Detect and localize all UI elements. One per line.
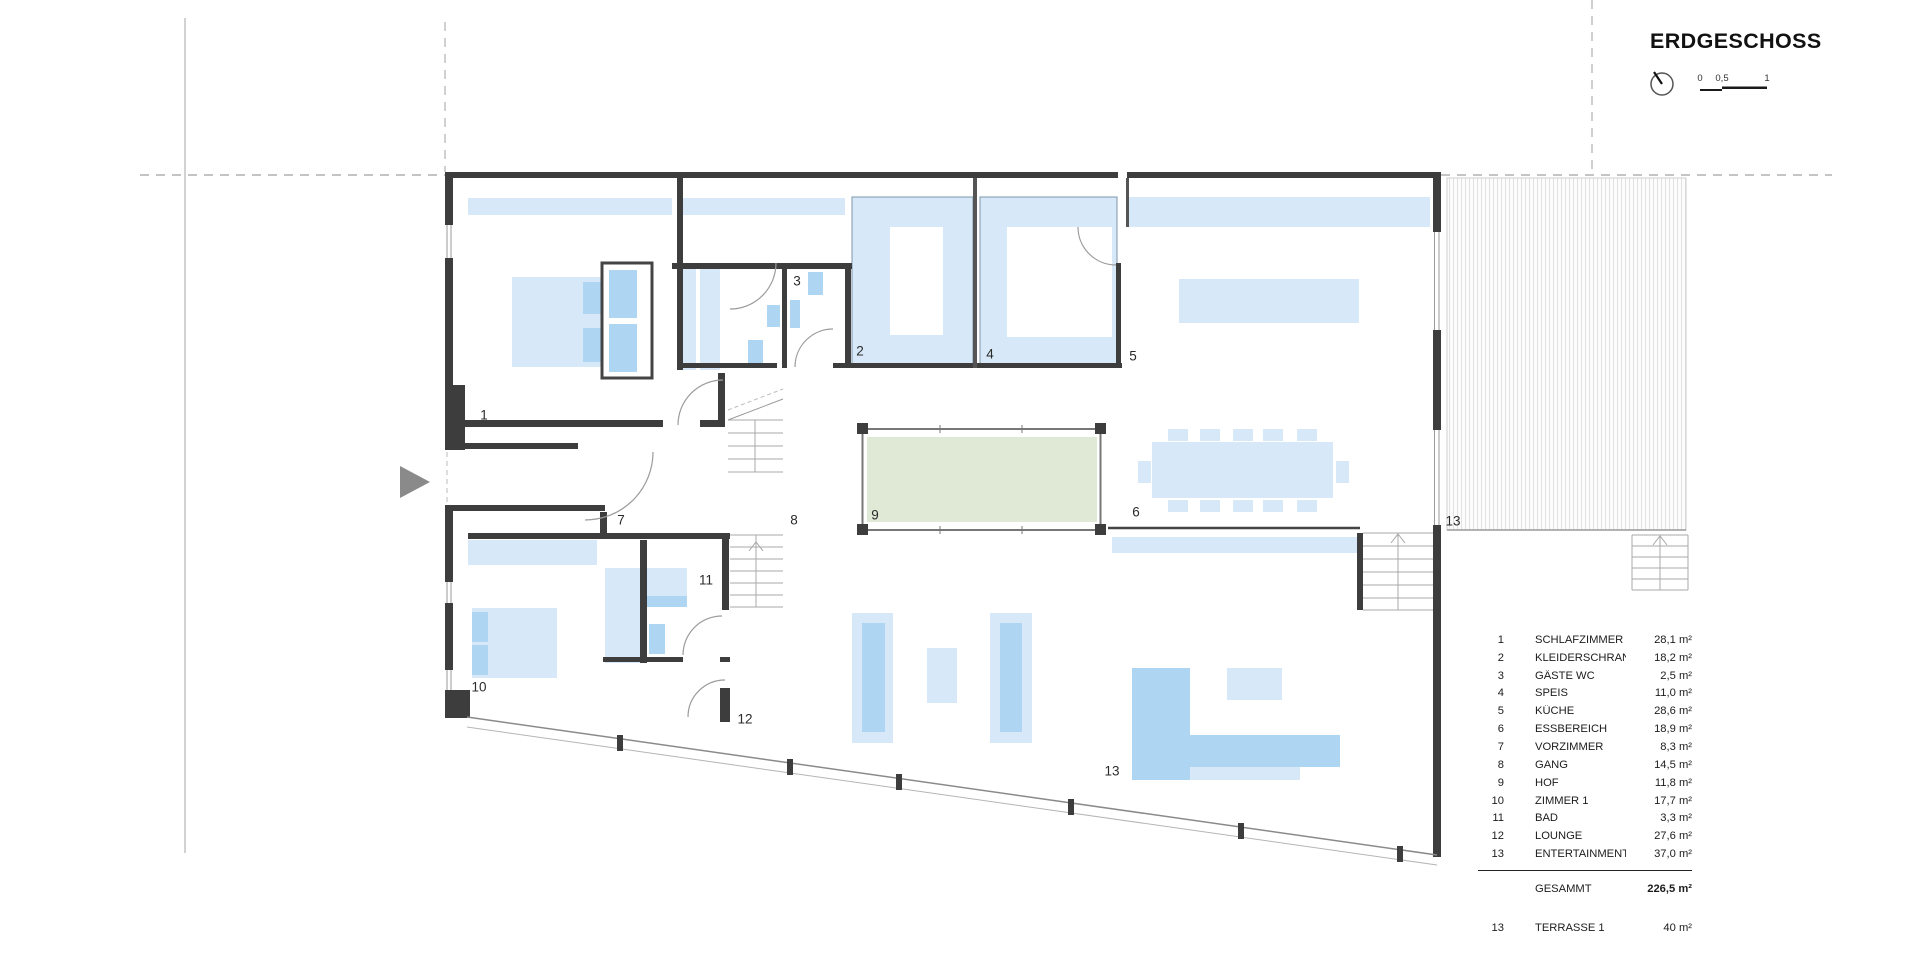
legend-row: 5KÜCHE28,6 m² (1478, 702, 1692, 720)
room-number-label: 6 (1132, 505, 1140, 520)
legend-row-name: SPEIS (1504, 687, 1626, 699)
room-number-label: 2 (856, 344, 864, 359)
legend-row-name: ZIMMER 1 (1504, 795, 1626, 807)
legend-row: 6ESSBEREICH18,9 m² (1478, 720, 1692, 738)
room-legend: 1SCHLAFZIMMER28,1 m²2KLEIDERSCHRANK18,2 … (1478, 631, 1692, 937)
legend-row-name: VORZIMMER (1504, 741, 1626, 753)
legend-row: 12LOUNGE27,6 m² (1478, 827, 1692, 845)
room-number-label: 4 (986, 347, 994, 362)
legend-row-area: 28,6 m² (1626, 705, 1692, 717)
room-number-label: 13 (1445, 514, 1460, 529)
legend-row-name: LOUNGE (1504, 830, 1626, 842)
legend-row: 10ZIMMER 117,7 m² (1478, 792, 1692, 810)
legend-row-number: 6 (1478, 723, 1504, 735)
legend-row: 13ENTERTAINMENT37,0 m² (1478, 845, 1692, 863)
room-number-label: 12 (737, 712, 752, 727)
legend-row: 11BAD3,3 m² (1478, 809, 1692, 827)
legend-row-name: ENTERTAINMENT (1504, 848, 1626, 860)
legend-row-area: 37,0 m² (1626, 848, 1692, 860)
legend-row-number: 4 (1478, 687, 1504, 699)
legend-row-number: 12 (1478, 830, 1504, 842)
legend-terrace-area: 40 m² (1626, 922, 1692, 934)
legend-row-name: KÜCHE (1504, 705, 1626, 717)
legend-row-area: 18,2 m² (1626, 652, 1692, 664)
room-number-label: 10 (471, 680, 486, 695)
legend-row: 7VORZIMMER8,3 m² (1478, 738, 1692, 756)
legend-terrace-num: 13 (1478, 922, 1504, 934)
room-number-label: 9 (871, 508, 879, 523)
legend-row: 4SPEIS11,0 m² (1478, 685, 1692, 703)
legend-rows: 1SCHLAFZIMMER28,1 m²2KLEIDERSCHRANK18,2 … (1478, 631, 1692, 863)
legend-row-name: HOF (1504, 777, 1626, 789)
room-number-label: 5 (1129, 349, 1137, 364)
room-number-label: 7 (617, 513, 625, 528)
legend-row-number: 3 (1478, 670, 1504, 682)
legend-row-area: 11,0 m² (1626, 687, 1692, 699)
legend-row-area: 2,5 m² (1626, 670, 1692, 682)
legend-row-area: 27,6 m² (1626, 830, 1692, 842)
legend-row: 3GÄSTE WC2,5 m² (1478, 667, 1692, 685)
legend-row-name: GÄSTE WC (1504, 670, 1626, 682)
legend-row-area: 8,3 m² (1626, 741, 1692, 753)
legend-row-area: 17,7 m² (1626, 795, 1692, 807)
room-number-label: 1 (480, 408, 488, 423)
legend-row-name: SCHLAFZIMMER (1504, 634, 1626, 646)
legend-row-number: 9 (1478, 777, 1504, 789)
legend-row-number: 7 (1478, 741, 1504, 753)
legend-total-area: 226,5 m² (1626, 883, 1692, 895)
legend-total-label: GESAMMT (1504, 883, 1626, 895)
legend-row-name: KLEIDERSCHRANK (1504, 652, 1626, 664)
legend-row-name: ESSBEREICH (1504, 723, 1626, 735)
legend-row-area: 14,5 m² (1626, 759, 1692, 771)
room-number-label: 8 (790, 513, 798, 528)
legend-row-number: 8 (1478, 759, 1504, 771)
legend-row-name: BAD (1504, 812, 1626, 824)
legend-row: 9HOF11,8 m² (1478, 774, 1692, 792)
legend-row-number: 1 (1478, 634, 1504, 646)
legend-row-number: 2 (1478, 652, 1504, 664)
legend-row: 8GANG14,5 m² (1478, 756, 1692, 774)
legend-terrace-row: 13 TERRASSE 1 40 m² (1478, 919, 1692, 937)
legend-row: 2KLEIDERSCHRANK18,2 m² (1478, 649, 1692, 667)
room-number-label: 13 (1104, 764, 1119, 779)
legend-row-area: 11,8 m² (1626, 777, 1692, 789)
room-number-label: 3 (793, 274, 801, 289)
room-number-label: 11 (699, 573, 713, 588)
legend-row-number: 10 (1478, 795, 1504, 807)
legend-row-number: 5 (1478, 705, 1504, 717)
legend-row-number: 13 (1478, 848, 1504, 860)
floor-plan-sheet: ERDGESCHOSS 0 0,5 1 1234567891011121313 … (0, 0, 1920, 973)
legend-row: 1SCHLAFZIMMER28,1 m² (1478, 631, 1692, 649)
legend-row-name: GANG (1504, 759, 1626, 771)
legend-divider (1478, 870, 1692, 871)
legend-row-area: 3,3 m² (1626, 812, 1692, 824)
legend-total-row: GESAMMT 226,5 m² (1478, 880, 1692, 898)
legend-row-area: 18,9 m² (1626, 723, 1692, 735)
legend-terrace-label: TERRASSE 1 (1504, 922, 1626, 934)
legend-row-number: 11 (1478, 812, 1504, 824)
legend-row-area: 28,1 m² (1626, 634, 1692, 646)
